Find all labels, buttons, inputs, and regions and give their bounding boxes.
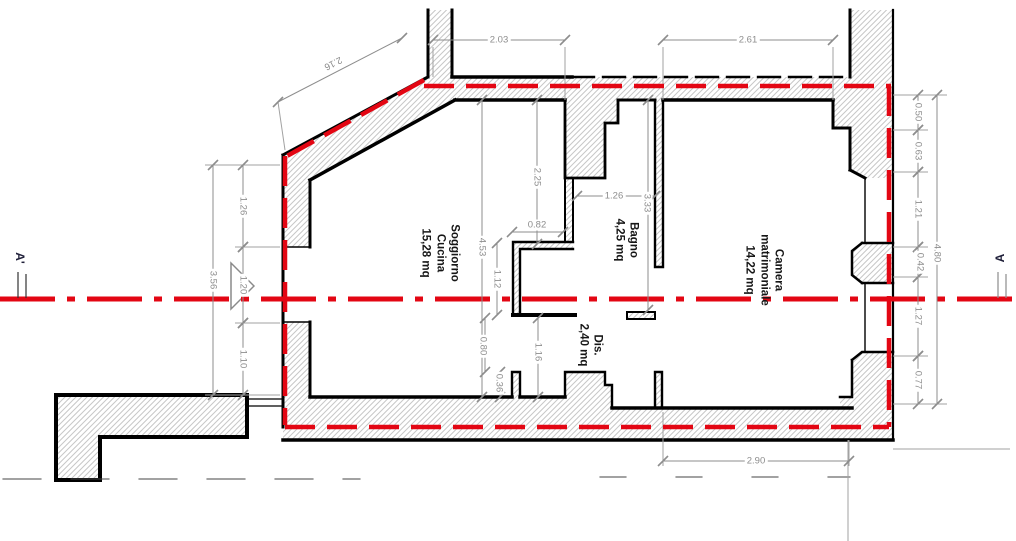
dimension-label: 2.03 (488, 35, 511, 46)
room-label-bagno: Bagno 4,25 mq (612, 219, 641, 262)
dimension-label: 2.61 (737, 35, 760, 46)
wall-stub-bagno-bottom (627, 312, 655, 319)
dimension-label: 0.80 (478, 335, 489, 358)
dimension-label: 2.25 (532, 166, 543, 189)
dimension-label: 4.80 (932, 242, 943, 265)
dimension-tick (273, 97, 283, 107)
dimension-label: 0.36 (494, 372, 505, 395)
wall-right-upper-mass (833, 100, 893, 178)
section-marker-a: A (993, 254, 1007, 263)
dimension-label: 3.56 (208, 269, 219, 292)
section-marker-label: A' (13, 252, 27, 264)
dimension-label: 1.12 (492, 268, 503, 291)
dimension-label: 1.27 (913, 305, 924, 328)
room-label-dis: Dis. 2,40 mq (576, 324, 605, 367)
entrance-door-threshold (247, 399, 283, 406)
dimension-label: 0.50 (913, 101, 924, 124)
dimension-label: 1.26 (603, 191, 626, 202)
room-name: Soggiorno (447, 224, 461, 282)
room-area: 4,25 mq (612, 219, 626, 262)
dimension-line (278, 38, 402, 102)
plan-drawing (0, 0, 1016, 541)
dimension-label: 1.26 (238, 195, 249, 218)
wall-thin-bagno-left (565, 178, 573, 242)
dimension-label: 1.20 (238, 274, 249, 297)
room-area: 15,28 mq (418, 224, 432, 282)
dimension-label: 1.21 (913, 198, 924, 221)
dimension-label: 3.33 (642, 192, 653, 215)
room-label-soggiorno: Soggiorno Cucina 15,28 mq (418, 224, 461, 282)
room-name: Camera (771, 234, 785, 306)
room-name: Dis. (590, 324, 604, 367)
floor-plan: Soggiorno Cucina 15,28 mq Bagno 4,25 mq … (0, 0, 1016, 541)
wall-chunk-soggiorno-bagno (565, 100, 618, 178)
wall-bottom-left (283, 322, 840, 440)
dimension-label: 2.90 (745, 456, 768, 467)
room-name: Bagno (626, 219, 640, 262)
room-area: 14,22 mq (742, 234, 756, 306)
dimension-tick (397, 33, 407, 43)
dimension-label: 0.63 (913, 140, 924, 163)
dimension-label: 0.77 (913, 369, 924, 392)
dimension-label: 4.53 (477, 236, 488, 259)
dimension-label: 0.42 (915, 251, 926, 274)
room-label-camera: Camera matrimoniale 14,22 mq (742, 234, 785, 306)
dimension-label: 0.82 (526, 220, 549, 231)
room-area: 2,40 mq (576, 324, 590, 367)
dimension-label: 1.16 (533, 341, 544, 364)
section-marker-a-prime: A' (13, 252, 27, 264)
section-marker-label: A (993, 254, 1007, 263)
dimension-label: 1.10 (238, 348, 249, 371)
room-name: Cucina (433, 224, 447, 282)
room-name: matrimoniale (757, 234, 771, 306)
